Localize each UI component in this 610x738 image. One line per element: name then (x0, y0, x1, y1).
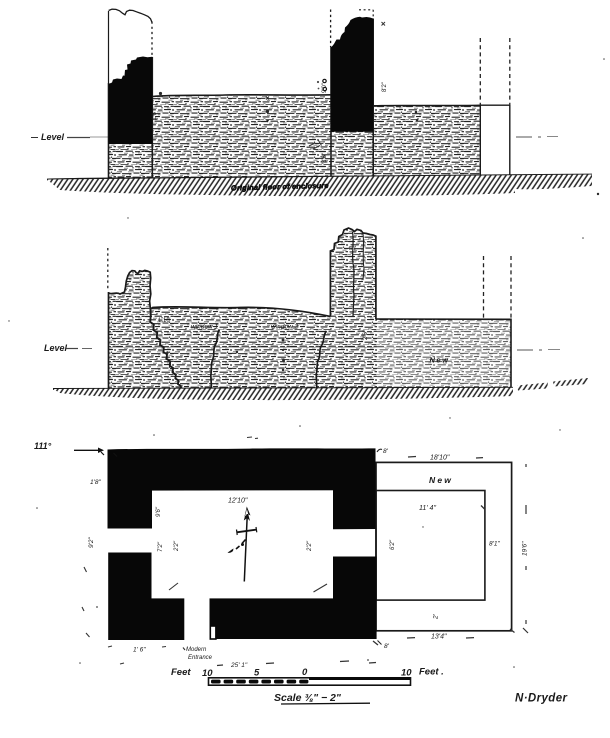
svg-text:12'10": 12'10" (228, 498, 248, 505)
svg-text:Level: Level (44, 343, 68, 353)
svg-text:1'6": 1'6" (152, 110, 158, 120)
svg-text:2'2": 2'2" (307, 540, 313, 552)
svg-text:18'10": 18'10" (430, 455, 450, 462)
svg-text:8': 8' (384, 643, 390, 650)
svg-text:Modern: Modern (186, 647, 207, 653)
svg-text:N·Dryder: N·Dryder (515, 693, 568, 705)
svg-text:5: 5 (254, 668, 260, 679)
svg-text:9'6": 9'6" (156, 506, 162, 517)
svg-text:New: New (429, 475, 453, 485)
svg-text:3'6": 3'6" (322, 153, 328, 163)
svg-text:0: 0 (302, 667, 308, 678)
svg-text:2'2": 2'2" (174, 540, 180, 552)
svg-text:111°: 111° (34, 441, 52, 451)
svg-text:Entrance: Entrance (188, 655, 213, 661)
svg-text:13'4": 13'4" (431, 634, 447, 641)
svg-text:Level: Level (41, 132, 65, 142)
svg-text:window 2: window 2 (271, 324, 298, 331)
svg-text:s.t: s.t (349, 245, 357, 252)
svg-text:7'2": 7'2" (158, 541, 164, 552)
svg-text:Feet .: Feet . (419, 667, 444, 678)
svg-text:6'2": 6'2" (390, 539, 396, 550)
svg-text:2': 2' (433, 613, 440, 620)
svg-text:10: 10 (401, 668, 412, 679)
svg-text:19'6": 19'6" (522, 541, 529, 556)
svg-text:9'2": 9'2" (88, 537, 95, 548)
svg-text:2'6": 2'6" (363, 330, 369, 340)
svg-text:8'1": 8'1" (489, 541, 500, 548)
svg-text:1' 6": 1' 6" (133, 647, 146, 654)
svg-text:New: New (430, 356, 450, 365)
svg-text:11' 4": 11' 4" (419, 505, 436, 512)
svg-text:25' 1": 25' 1" (230, 662, 248, 669)
svg-text:8': 8' (383, 448, 389, 455)
svg-text:1.10: 1.10 (158, 318, 170, 324)
svg-text:Feet: Feet (171, 667, 191, 678)
svg-text:Scale ⅜" − 2": Scale ⅜" − 2" (274, 692, 342, 704)
svg-text:window 1: window 1 (191, 324, 218, 331)
svg-text:8'2": 8'2" (382, 82, 388, 92)
svg-text:1'8": 1'8" (90, 479, 101, 486)
